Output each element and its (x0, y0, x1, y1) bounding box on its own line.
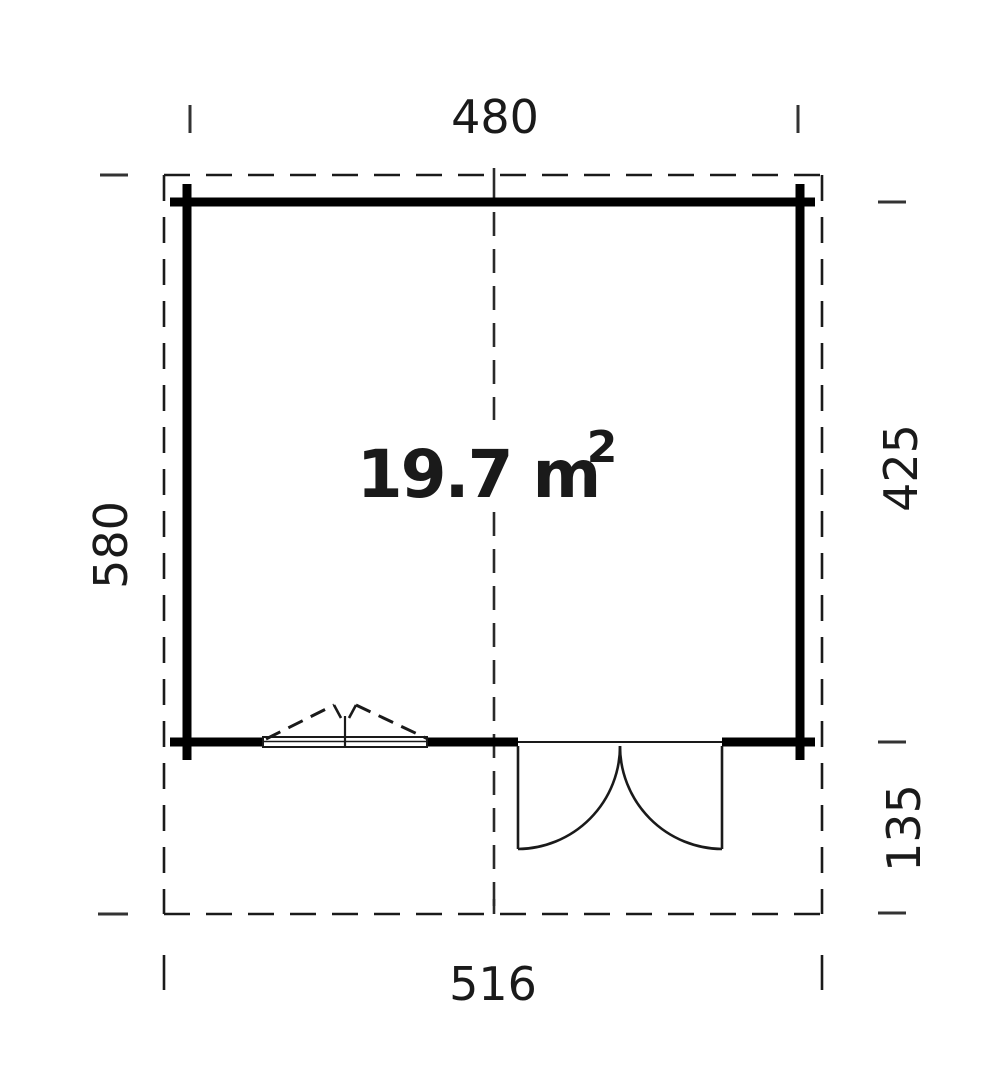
floor-plan-page: 480 516 580 425 135 19.7 m 2 (0, 0, 1000, 1071)
window-opening-dash-left (266, 705, 334, 739)
door-arc-left (518, 746, 620, 849)
door-arc-right (620, 746, 722, 849)
window-opening-dashes (266, 705, 428, 739)
window (263, 705, 428, 747)
dimension-top-label: 480 (451, 90, 539, 144)
dimension-right-lower-label: 135 (877, 784, 931, 872)
window-notch-left (334, 705, 341, 718)
room-area-exponent: 2 (587, 422, 618, 473)
window-notch-right (349, 705, 356, 718)
dimension-left-label: 580 (84, 501, 138, 589)
dimension-right-upper-label: 425 (874, 424, 928, 512)
room-area-label: 19.7 m 2 (357, 422, 625, 513)
window-opening-dash-right (356, 705, 428, 739)
dimension-bottom-label: 516 (449, 957, 537, 1011)
floor-plan-drawing: 480 516 580 425 135 19.7 m 2 (0, 0, 1000, 1071)
double-door (518, 742, 722, 849)
room-area-value: 19.7 m (357, 436, 600, 513)
